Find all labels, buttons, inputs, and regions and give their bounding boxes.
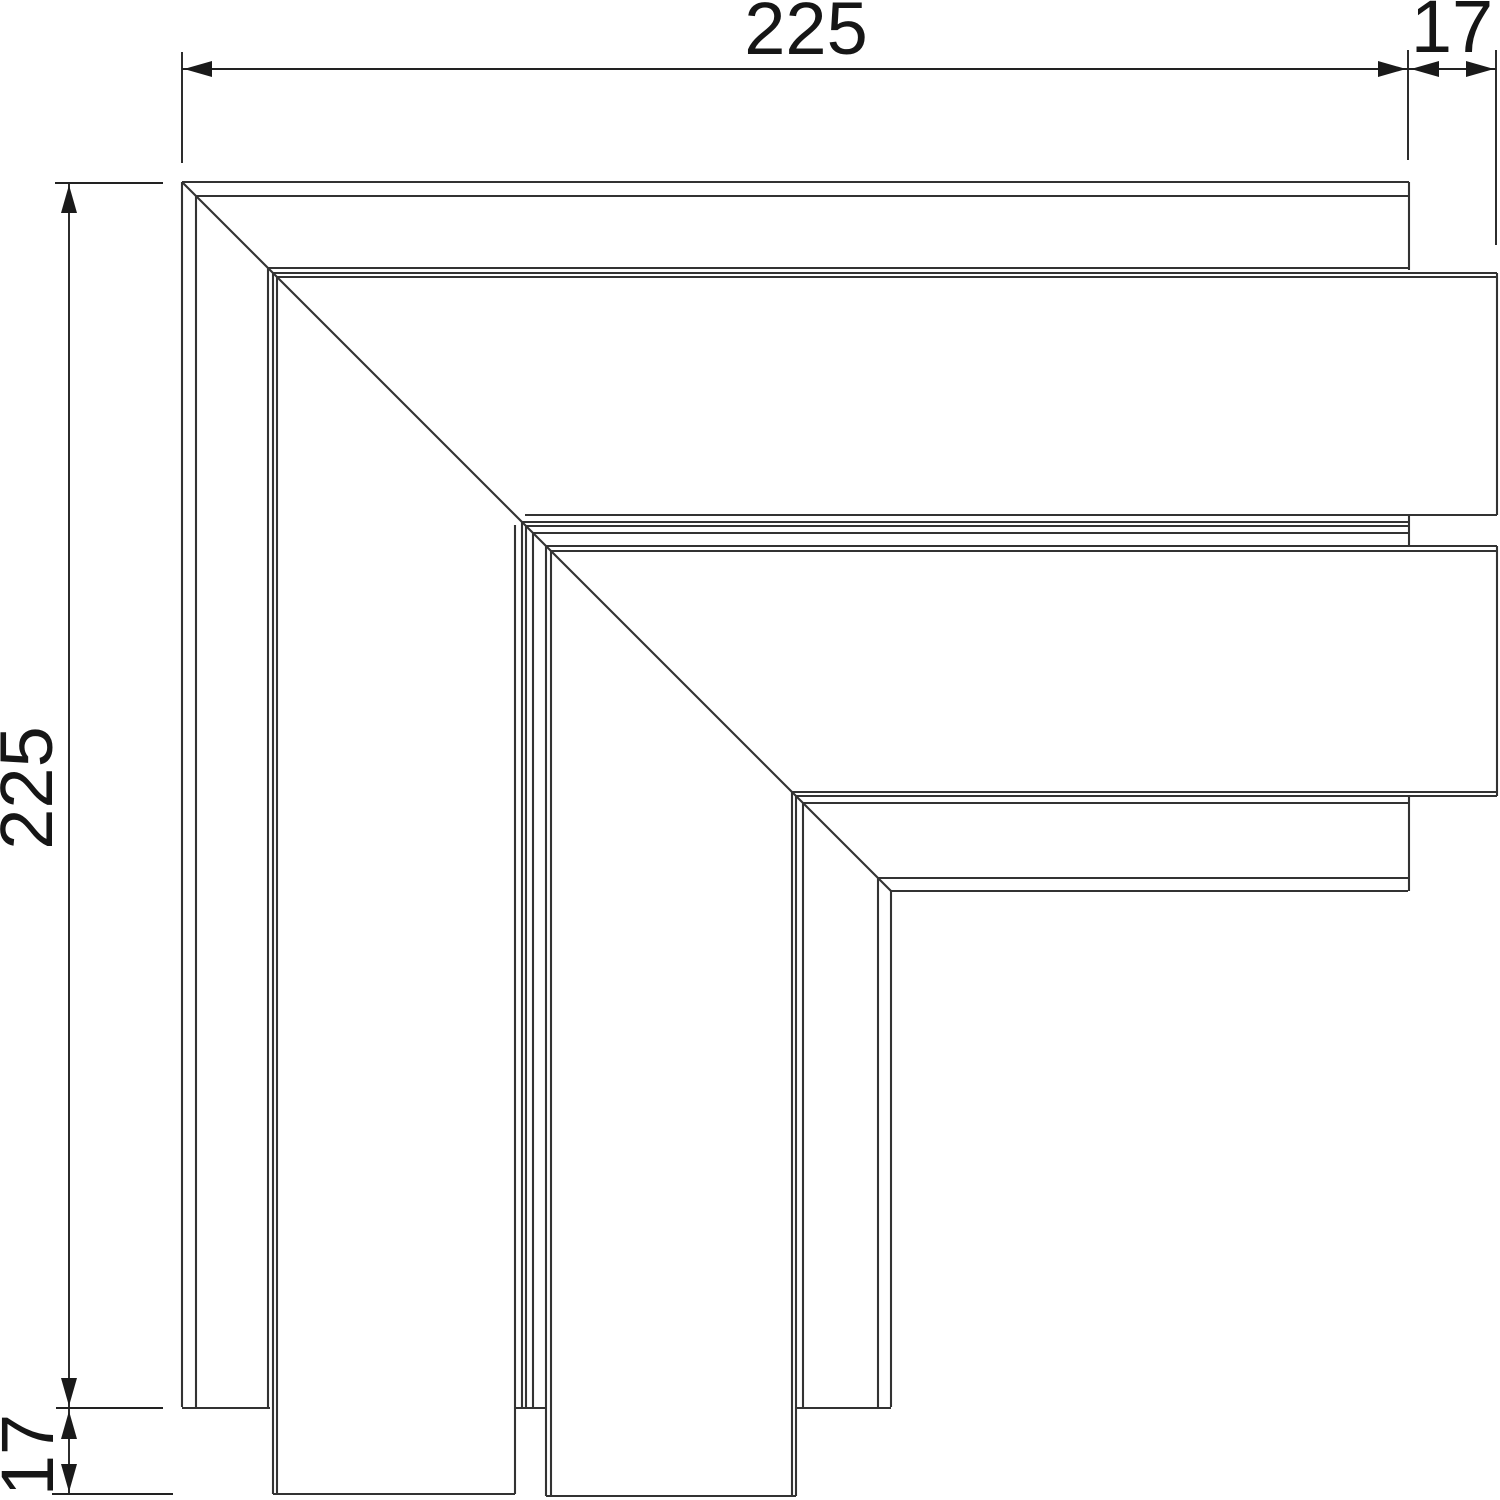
dimension-arrow [61,1378,77,1406]
dimension-arrow [184,61,212,77]
dim-label-left-height: 225 [0,726,64,849]
dim-label-left-overlap: 17 [0,1414,65,1496]
dimension-arrow [1378,61,1406,77]
part-edge-line [182,182,891,891]
drawing-canvas [0,0,1500,1500]
dim-label-top-width: 225 [744,0,867,66]
dim-label-top-overlap: 17 [1411,0,1493,64]
technical-drawing-page: 225 17 225 17 [0,0,1500,1500]
dimension-arrow [61,185,77,213]
